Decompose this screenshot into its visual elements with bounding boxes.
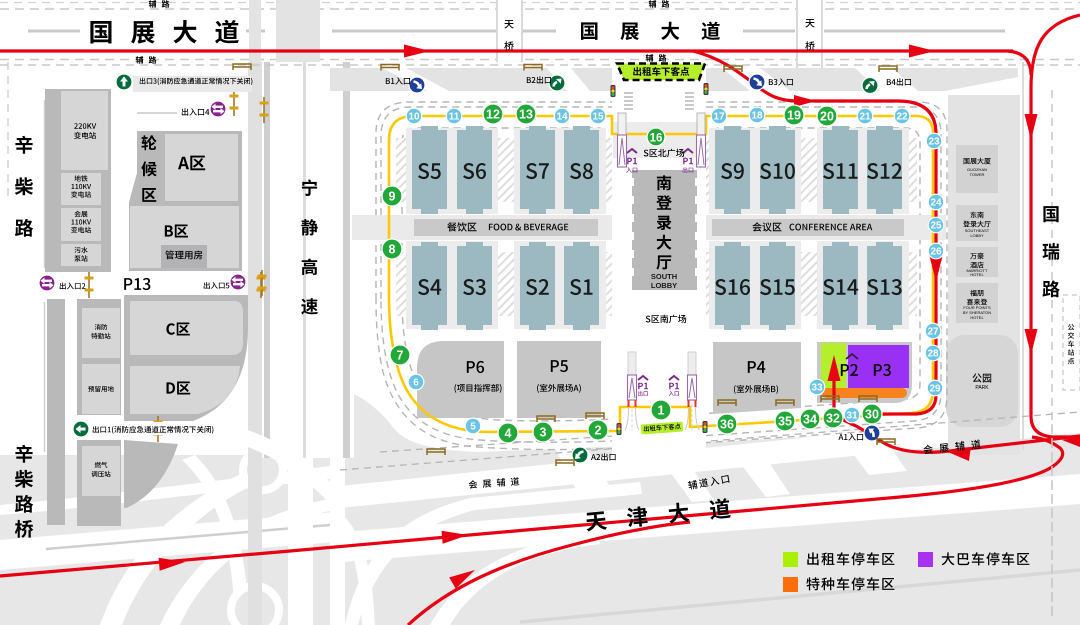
svg-text:23: 23: [928, 137, 940, 148]
svg-text:8: 8: [389, 242, 396, 256]
svg-text:5: 5: [470, 422, 476, 433]
svg-text:6: 6: [413, 378, 419, 389]
svg-text:7: 7: [397, 348, 404, 362]
svg-text:31: 31: [846, 411, 858, 422]
svg-text:25: 25: [930, 221, 942, 232]
svg-text:LOBBY: LOBBY: [970, 233, 984, 238]
svg-text:SOUTH: SOUTH: [651, 272, 677, 281]
svg-text:12: 12: [486, 107, 500, 121]
svg-text:19: 19: [787, 108, 801, 122]
svg-text:13: 13: [519, 107, 533, 121]
svg-text:33: 33: [811, 383, 823, 394]
svg-text:1: 1: [658, 403, 665, 417]
svg-text:32: 32: [826, 411, 840, 425]
svg-text:17: 17: [713, 112, 725, 123]
svg-text:24: 24: [930, 198, 942, 209]
svg-text:26: 26: [930, 247, 942, 258]
svg-text:9: 9: [389, 189, 396, 203]
svg-text:29: 29: [929, 384, 941, 395]
svg-text:22: 22: [896, 112, 908, 123]
svg-text:20: 20: [820, 109, 834, 123]
svg-text:4: 4: [505, 426, 512, 440]
svg-text:3: 3: [540, 425, 547, 439]
svg-text:15: 15: [592, 112, 604, 123]
svg-text:34: 34: [803, 412, 817, 426]
svg-text:2: 2: [595, 423, 602, 437]
svg-text:30: 30: [865, 407, 879, 421]
svg-text:18: 18: [751, 111, 763, 122]
svg-text:10: 10: [408, 112, 420, 123]
svg-text:16: 16: [650, 132, 663, 144]
svg-text:27: 27: [927, 327, 939, 338]
svg-text:HOTEL: HOTEL: [970, 272, 984, 277]
svg-text:36: 36: [720, 417, 734, 431]
svg-text:TOWER: TOWER: [970, 172, 985, 177]
svg-text:PARK: PARK: [975, 385, 989, 391]
svg-text:11: 11: [449, 112, 460, 123]
svg-text:14: 14: [556, 112, 568, 123]
svg-text:HOTEL: HOTEL: [970, 315, 984, 320]
svg-text:28: 28: [927, 349, 939, 360]
svg-text:21: 21: [859, 112, 871, 123]
svg-text:35: 35: [778, 414, 792, 428]
svg-text:LOBBY: LOBBY: [651, 281, 677, 290]
